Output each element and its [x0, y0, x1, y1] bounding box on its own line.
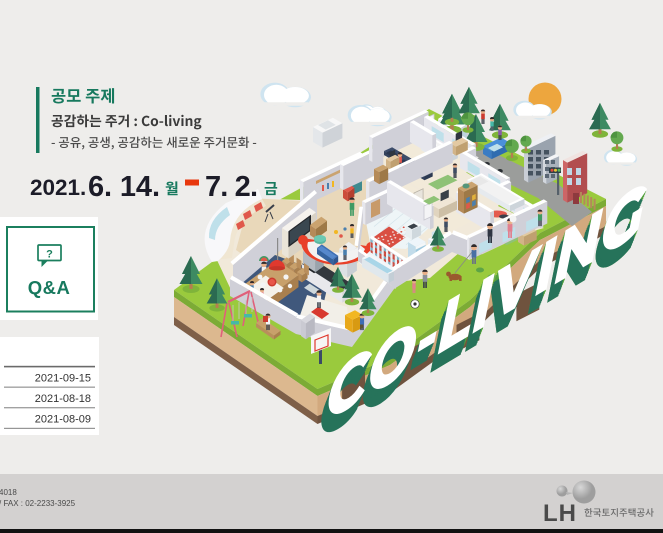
- svg-text:LH: LH: [543, 500, 577, 527]
- svg-text:2021-08-09: 2021-08-09: [35, 414, 91, 426]
- svg-text:2021-08-18: 2021-08-18: [35, 393, 91, 405]
- svg-text:?: ?: [46, 249, 53, 261]
- svg-text:/ FAX : 02-2233-3925: / FAX : 02-2233-3925: [0, 499, 76, 508]
- svg-text:2021-09-15: 2021-09-15: [35, 373, 91, 385]
- svg-text:Q&A: Q&A: [28, 277, 71, 298]
- svg-text:6. 14.: 6. 14.: [88, 171, 160, 203]
- svg-text:4018: 4018: [0, 488, 17, 497]
- svg-text:7. 2.: 7. 2.: [205, 171, 258, 203]
- svg-text:2021.: 2021.: [30, 175, 86, 200]
